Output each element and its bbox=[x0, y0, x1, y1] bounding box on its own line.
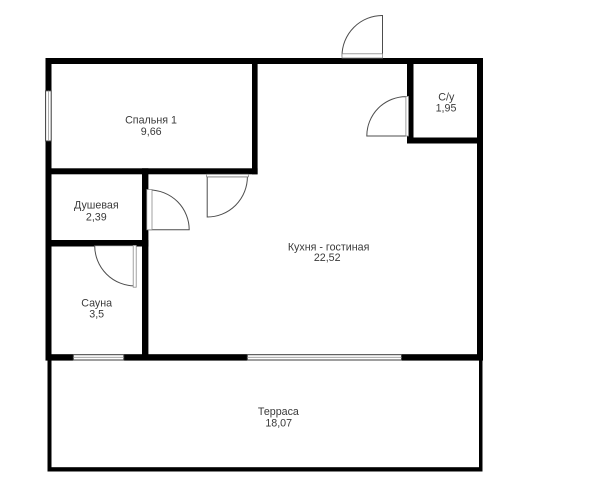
svg-text:1,95: 1,95 bbox=[436, 103, 457, 115]
svg-text:9,66: 9,66 bbox=[141, 126, 162, 138]
svg-text:18,07: 18,07 bbox=[265, 417, 292, 429]
svg-text:3,5: 3,5 bbox=[89, 309, 104, 321]
svg-text:2,39: 2,39 bbox=[86, 212, 107, 224]
svg-text:Спальня 1: Спальня 1 bbox=[125, 114, 177, 126]
svg-text:Терраса: Терраса bbox=[258, 406, 299, 418]
svg-text:Душевая: Душевая bbox=[74, 200, 119, 212]
svg-text:22,52: 22,52 bbox=[314, 252, 341, 264]
